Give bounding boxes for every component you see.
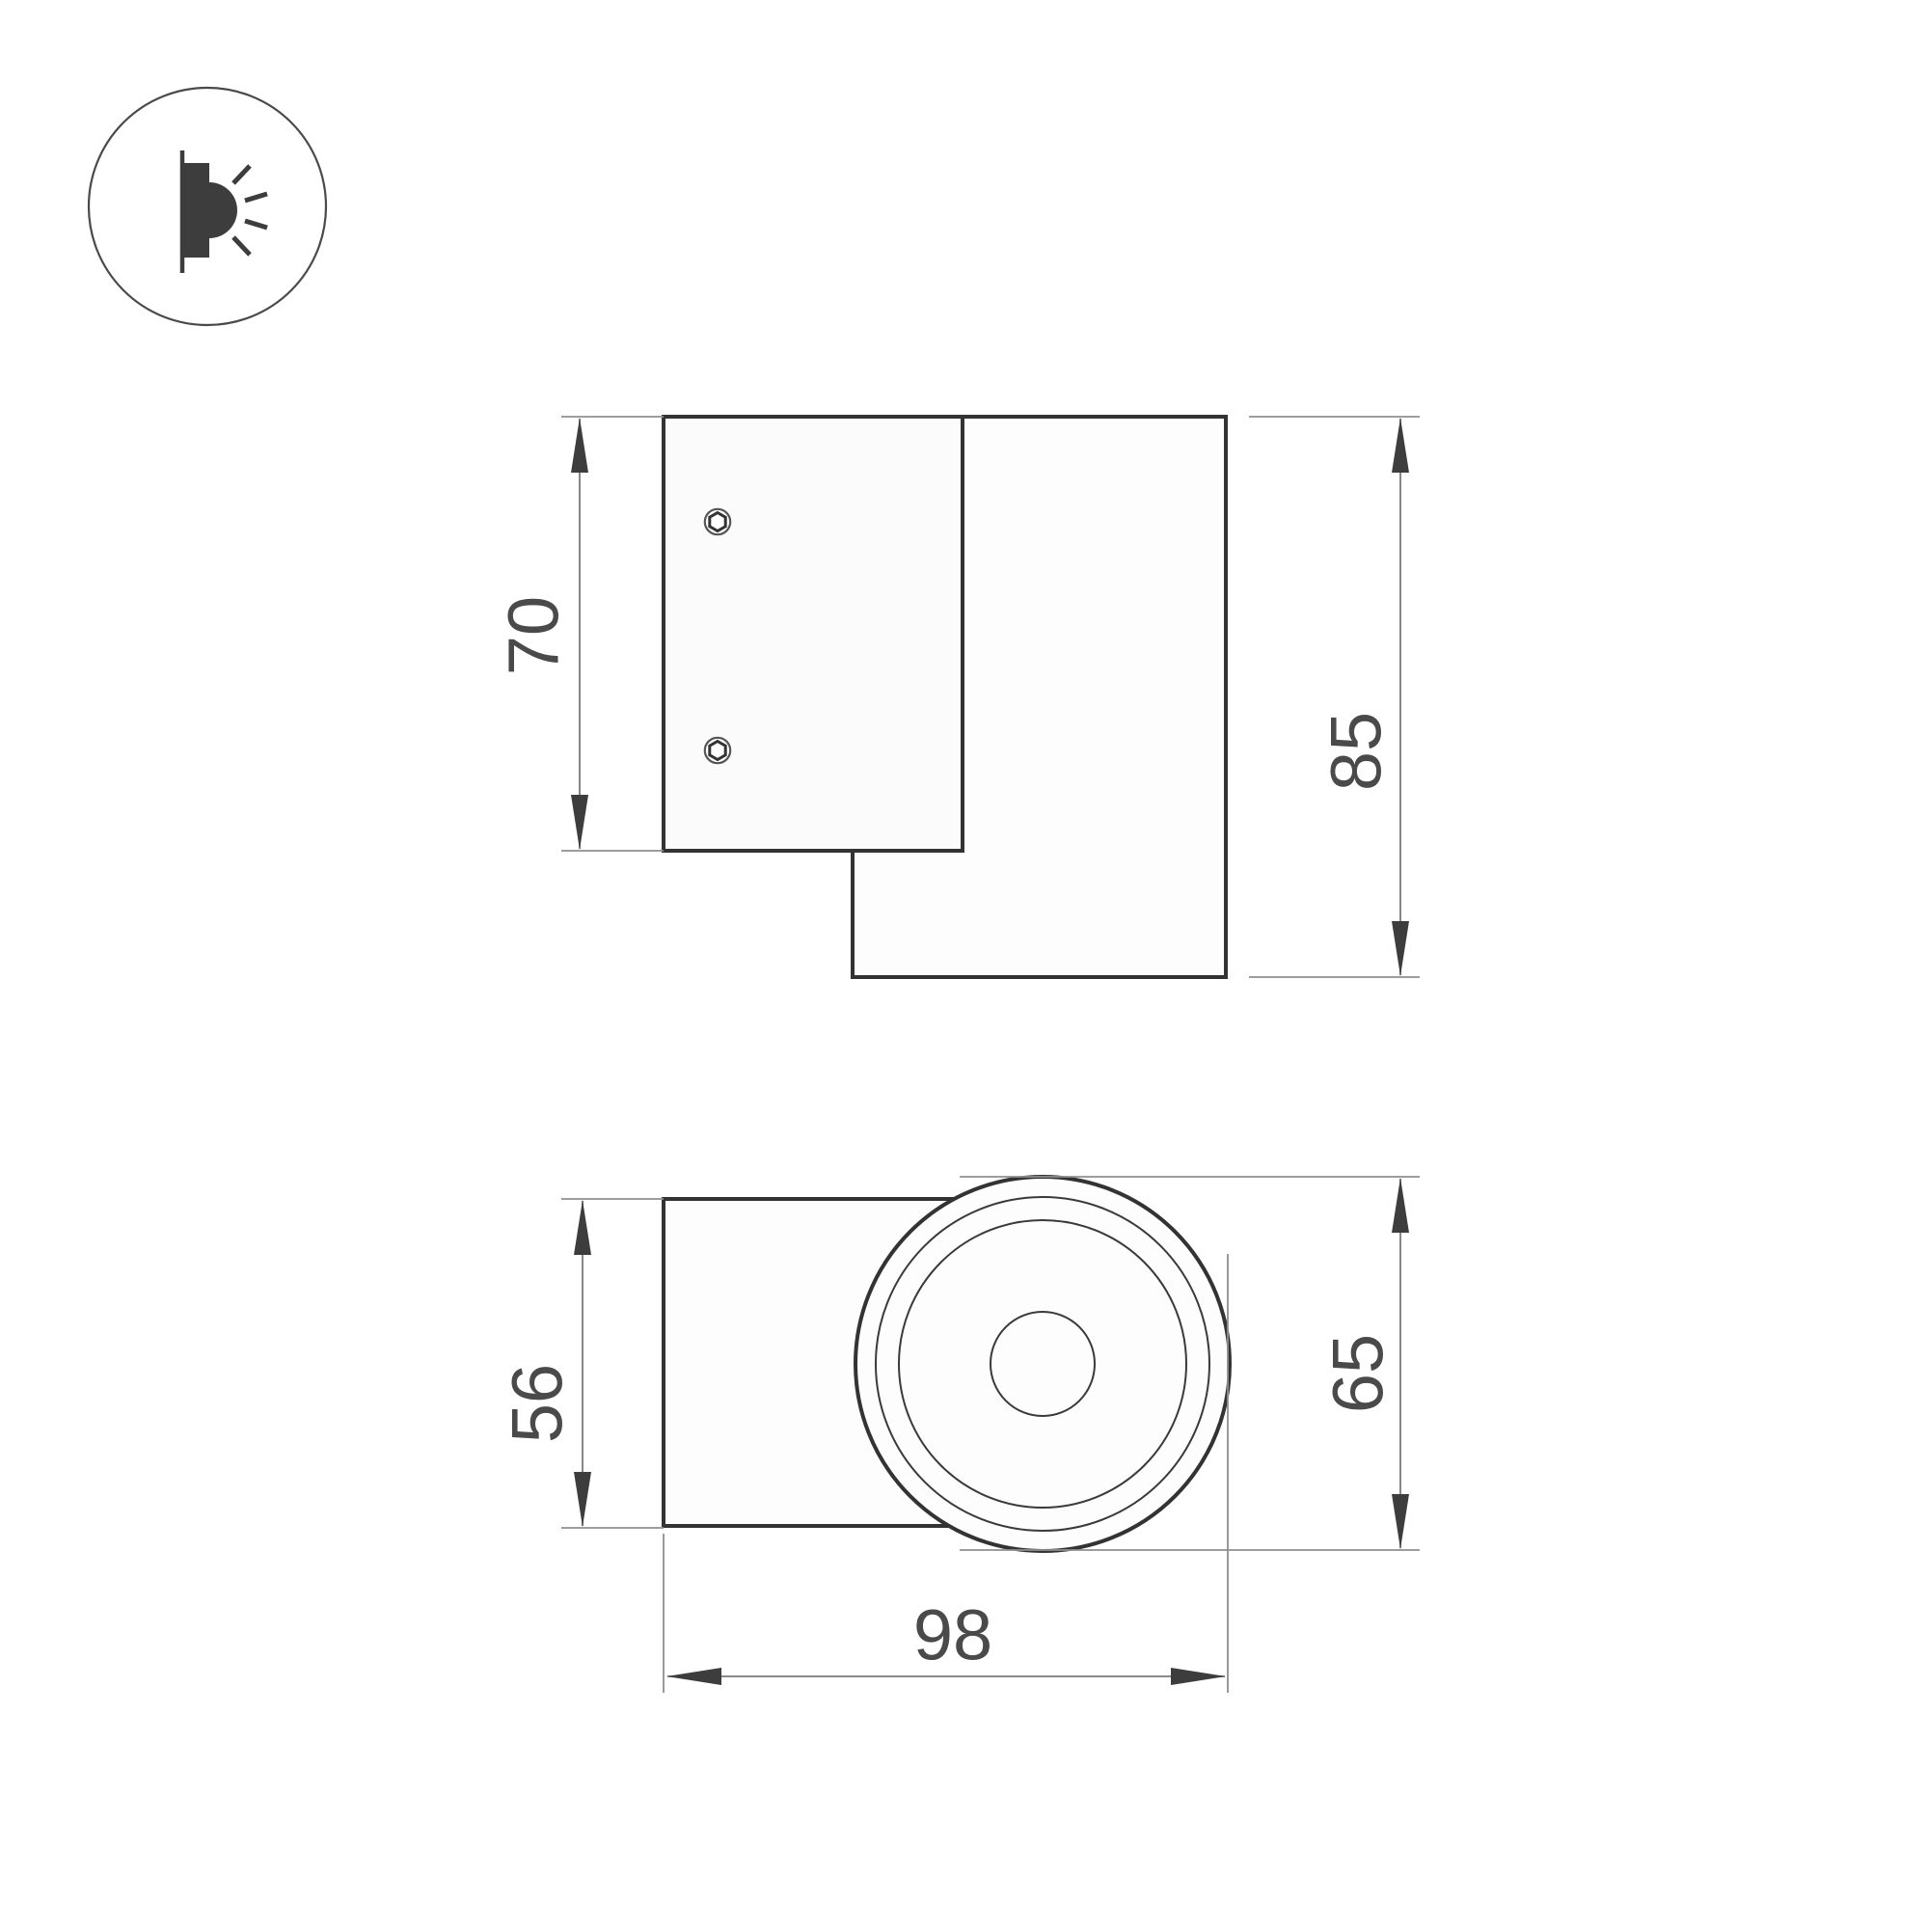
- side-view: 70 85: [494, 417, 1421, 977]
- arrow-up: [571, 418, 588, 473]
- hex-screw-bottom-icon: [705, 738, 730, 763]
- front-view: 56 65 98: [498, 1177, 1421, 1693]
- hex-screw-top-icon: [705, 509, 730, 534]
- dimension-overall-height: 85: [1249, 417, 1420, 977]
- arrow-up: [1392, 1178, 1409, 1233]
- dimension-label-65: 65: [1318, 1334, 1398, 1413]
- dimension-label-98: 98: [913, 1595, 992, 1675]
- front-face-outer-circle: [855, 1177, 1230, 1551]
- dimension-body-width: 56: [498, 1199, 665, 1528]
- wall-light-icon: [89, 88, 326, 325]
- arrow-up: [574, 1200, 591, 1255]
- icon-lamp-body: [184, 163, 209, 258]
- dimension-label-70: 70: [494, 596, 574, 675]
- dimension-plate-height: 70: [494, 417, 665, 851]
- dimension-drawing: 70 85 56: [0, 0, 1927, 1927]
- dimension-label-85: 85: [1316, 712, 1397, 791]
- side-mounting-plate: [664, 417, 963, 851]
- arrow-down: [571, 795, 588, 850]
- dimension-label-56: 56: [498, 1364, 578, 1443]
- arrow-down: [1392, 921, 1409, 976]
- arrow-right: [1171, 1668, 1226, 1685]
- arrow-left: [666, 1668, 721, 1685]
- technical-drawing-canvas: 70 85 56: [0, 0, 1927, 1932]
- arrow-up: [1392, 418, 1409, 473]
- arrow-down: [574, 1472, 591, 1527]
- arrow-down: [1392, 1494, 1409, 1549]
